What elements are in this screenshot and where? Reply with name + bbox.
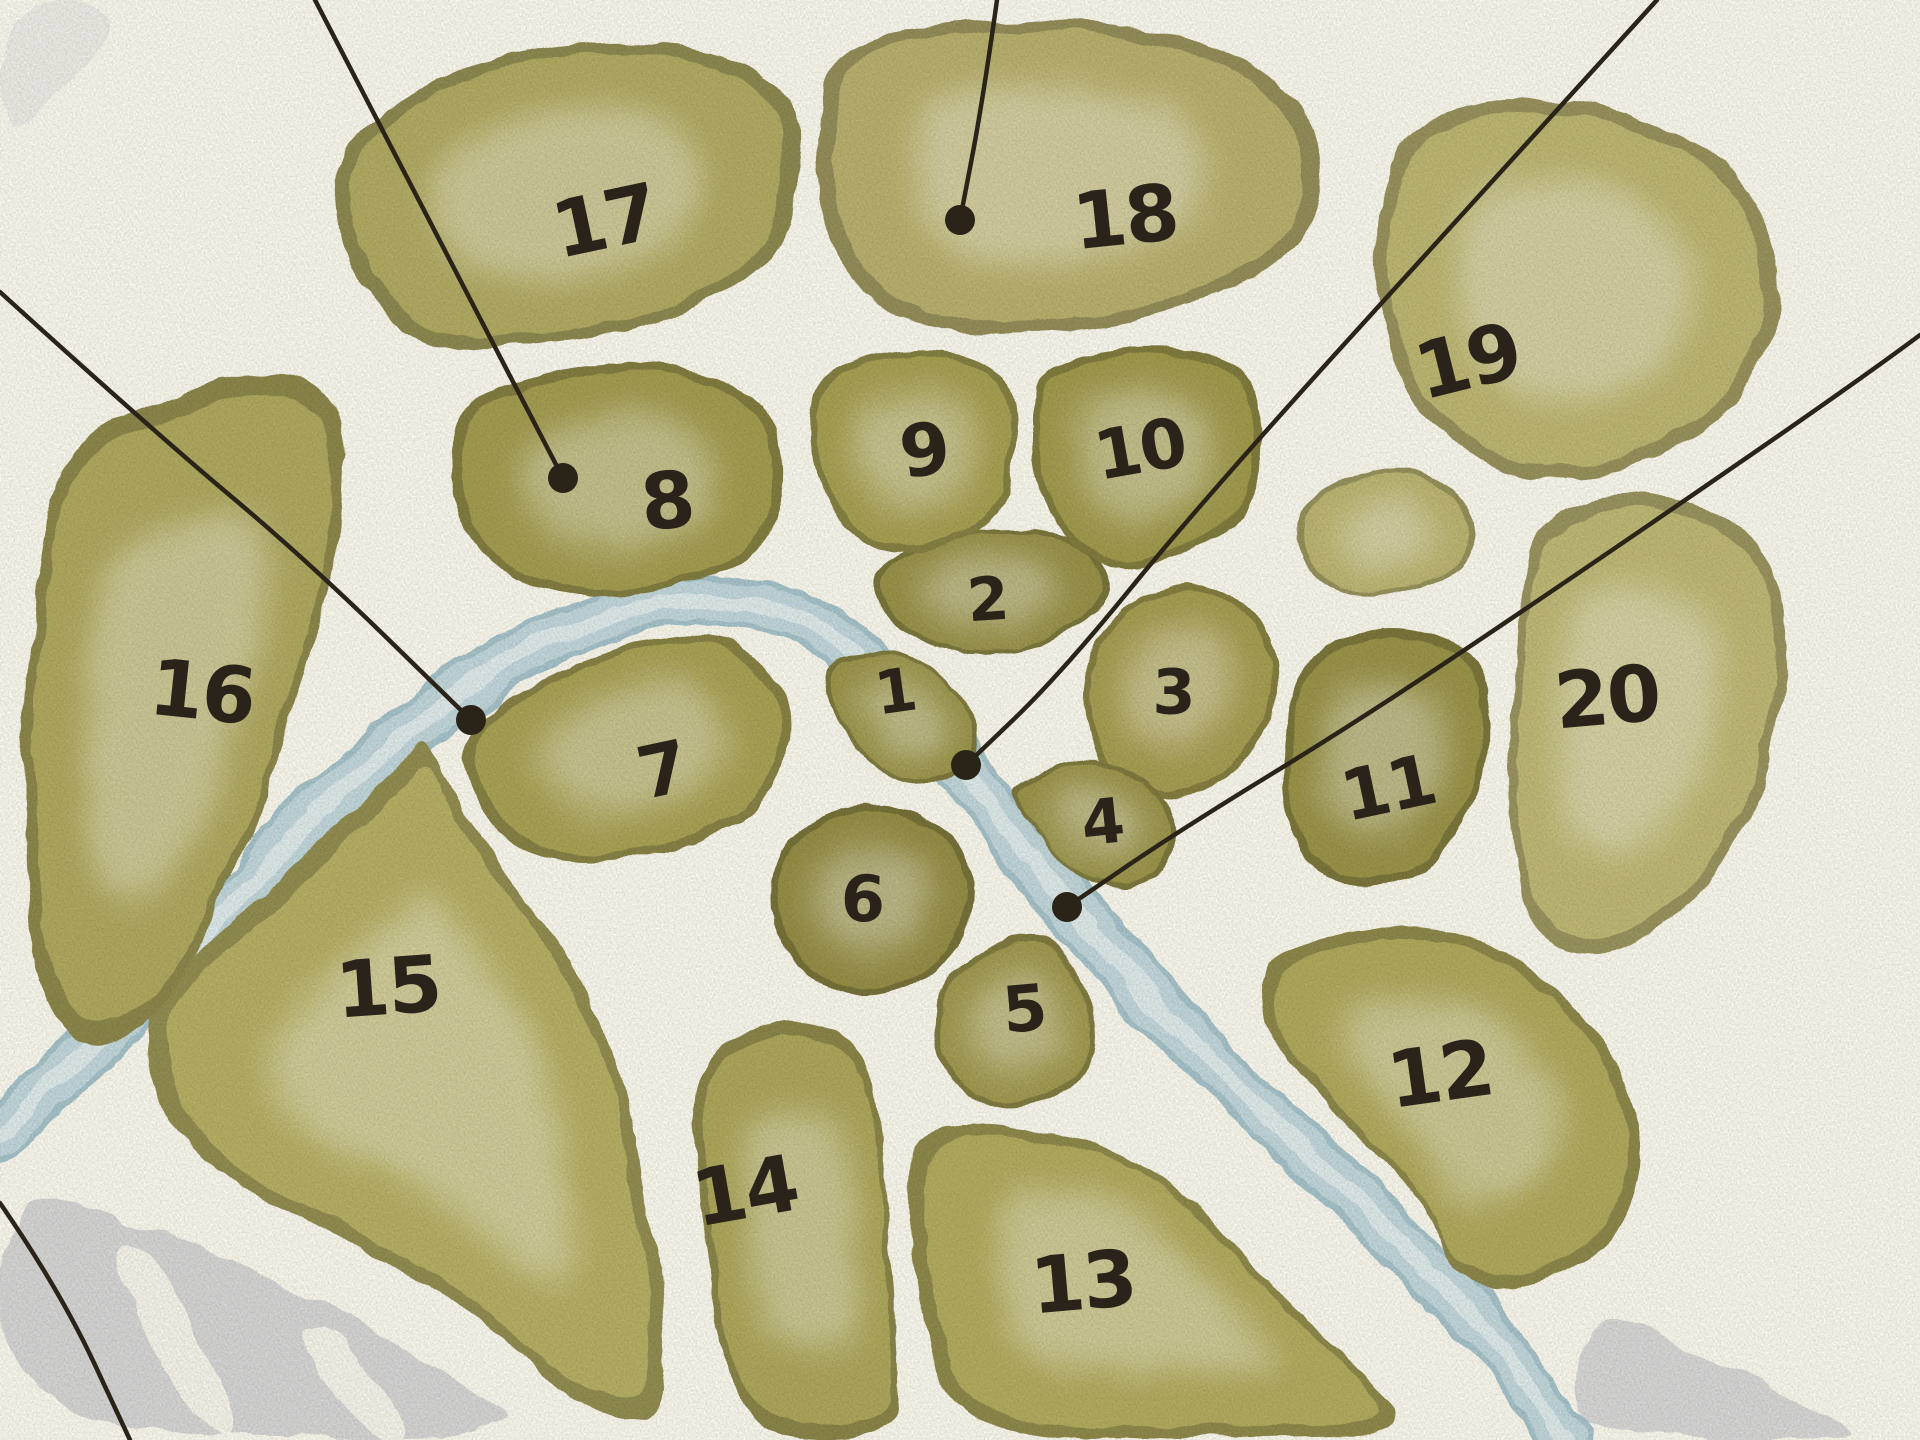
region-15-label: 15: [333, 939, 444, 1036]
callout-river-southeast-dot: [1052, 892, 1082, 922]
callout-river-west-dot: [456, 705, 486, 735]
region-10-label: 10: [1089, 403, 1192, 497]
region-13-label: 13: [1027, 1234, 1139, 1333]
region-18-label: 18: [1068, 168, 1181, 268]
region-2-label: 2: [965, 564, 1010, 637]
callout-region-18-dot: [945, 205, 975, 235]
region-5-label: 5: [1000, 971, 1049, 1048]
region-4-label: 4: [1078, 784, 1127, 861]
map-svg: 1234567891011121314151617181920: [0, 0, 1920, 1440]
region-3-label: 3: [1152, 656, 1193, 729]
region-14-label: 14: [686, 1139, 805, 1246]
region-6-label: 6: [839, 862, 884, 937]
paris-arrondissements-watercolor-map: 1234567891011121314151617181920: [0, 0, 1920, 1440]
callout-region-1-dot: [951, 750, 981, 780]
region-8-label: 8: [637, 455, 697, 549]
region-16-label: 16: [145, 643, 258, 743]
region-20-label: 20: [1551, 649, 1663, 748]
region-12-label: 12: [1382, 1023, 1498, 1127]
callout-region-8-dot: [548, 463, 578, 493]
